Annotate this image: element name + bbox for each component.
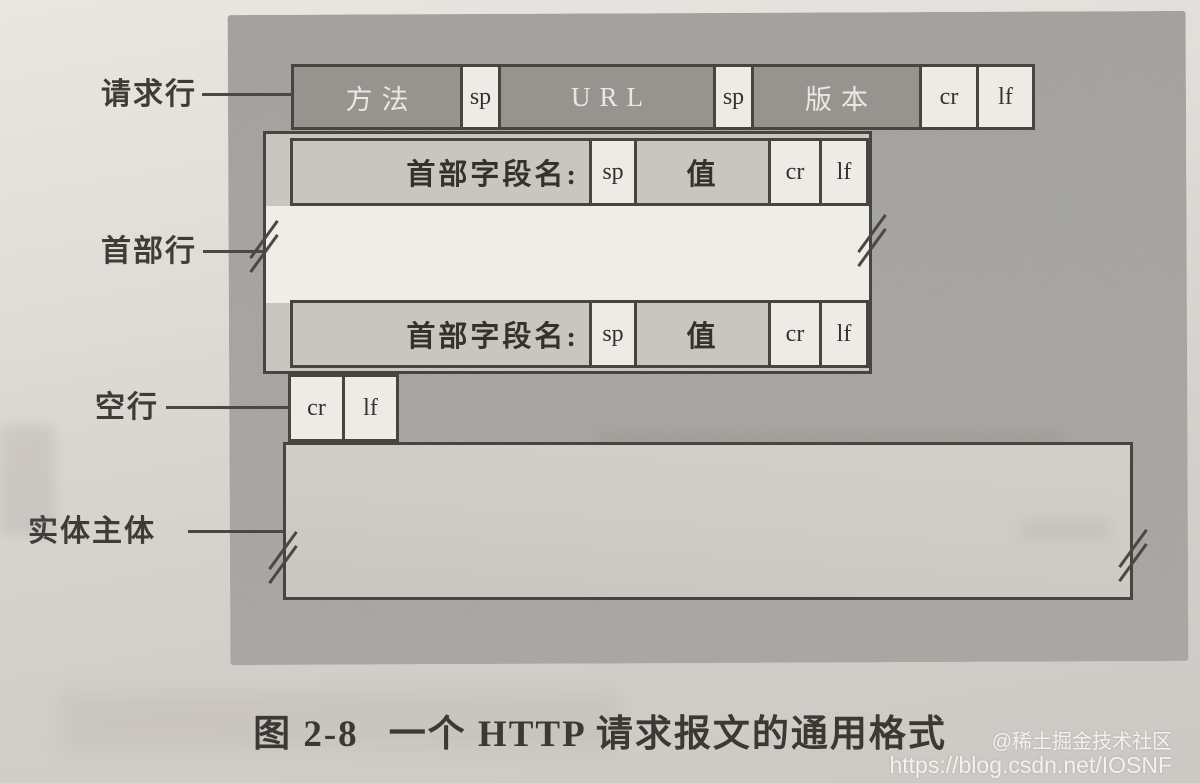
break-mark-icon — [1116, 536, 1150, 576]
pointer-line-header — [203, 250, 265, 253]
blank-line-row: cr lf — [288, 374, 399, 442]
cr-cell: cr — [288, 374, 345, 442]
version-cell: 版本 — [751, 64, 922, 130]
cr-cell: cr — [768, 300, 822, 368]
header-field-name-cell: 首部字段名: — [290, 138, 592, 206]
sp-cell: sp — [460, 64, 501, 130]
figure-number: 图 2-8 — [253, 714, 359, 755]
cr-cell: cr — [768, 138, 822, 206]
book-page-photo: 方法 sp URL sp 版本 cr lf 首部字段名: sp 值 cr lf … — [0, 0, 1200, 783]
method-cell: 方法 — [291, 64, 463, 130]
watermark: @稀土掘金技术社区 https://blog.csdn.net/IOSNF — [889, 731, 1172, 777]
pointer-line-blank — [166, 406, 289, 409]
pointer-line-entity — [188, 530, 284, 533]
cr-cell: cr — [919, 64, 979, 130]
lf-cell: lf — [976, 64, 1035, 130]
header-field-name-cell: 首部字段名: — [290, 300, 592, 368]
sp-cell: sp — [713, 64, 754, 130]
sp-cell: sp — [589, 300, 637, 368]
header-continuation-band — [266, 206, 869, 303]
url-cell: URL — [498, 64, 716, 130]
label-entity-body: 实体主体 — [28, 516, 156, 548]
break-mark-icon — [855, 221, 889, 261]
label-header-lines: 首部行 — [101, 236, 197, 268]
watermark-url: https://blog.csdn.net/IOSNF — [889, 754, 1172, 777]
label-request-line: 请求行 — [101, 79, 197, 111]
request-line-row: 方法 sp URL sp 版本 cr lf — [291, 64, 1035, 130]
label-blank-line: 空行 — [95, 392, 159, 424]
break-mark-icon — [247, 227, 281, 267]
header-lines-box: 首部字段名: sp 值 cr lf 首部字段名: sp 值 cr lf — [263, 131, 872, 374]
figure-title: 一个 HTTP 请求报文的通用格式 — [389, 714, 947, 755]
lf-cell: lf — [342, 374, 399, 442]
value-cell: 值 — [634, 300, 771, 368]
break-mark-icon — [266, 538, 300, 578]
value-cell: 值 — [634, 138, 771, 206]
header-line-row: 首部字段名: sp 值 cr lf — [290, 300, 869, 368]
entity-body-box — [283, 442, 1133, 600]
lf-cell: lf — [819, 300, 869, 368]
pointer-line-request — [202, 93, 292, 96]
sp-cell: sp — [589, 138, 637, 206]
lf-cell: lf — [819, 138, 869, 206]
watermark-community: @稀土掘金技术社区 — [889, 731, 1172, 754]
header-line-row: 首部字段名: sp 值 cr lf — [290, 138, 869, 206]
